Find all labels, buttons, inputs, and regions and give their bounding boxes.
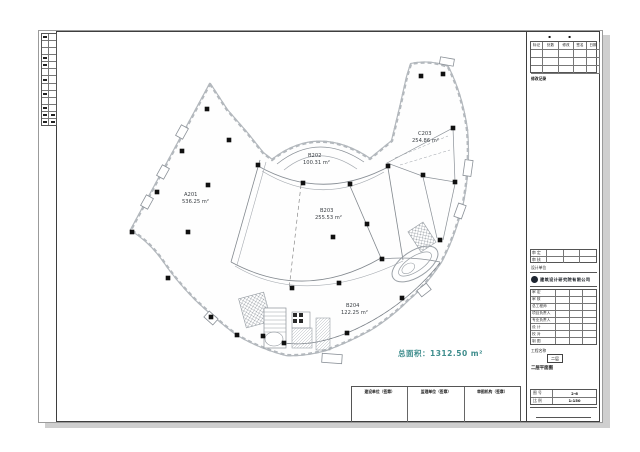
personnel-row: 设 计 [531,324,596,331]
strip-row [42,48,56,55]
revision-cell [574,66,587,74]
personnel-row: 制 图 [531,338,596,344]
cad-viewer-screenshot: { "page": { "bg": "#ffffff" }, "plan": {… [0,0,640,452]
drawing-sheet: ▪ ▪ 标记处数修改签名日期 修改记录 审 定审 核 设计单位 建筑设计研究院有… [38,30,603,423]
sheet-meta-row: 比 例1:150 [531,398,596,405]
personnel-row: 项目负责人 [531,311,596,318]
personnel-table: 审 定审 核总工程师项目负责人专业负责人设 计校 对制 图 [530,289,597,345]
revision-header-cell: 标记 [531,42,543,50]
strip-row [42,55,56,62]
approval-row: 审 定 [531,250,596,257]
approval-row: 审 核 [531,257,596,263]
approval-rows: 审 定审 核 [530,249,597,263]
company-logo-icon [531,276,538,283]
strip-row [42,105,56,112]
strip-row [42,62,56,69]
revision-header-cell: 修改 [559,42,574,50]
project-name-label: 工程名称 [531,348,600,354]
strip-row [42,76,56,83]
revision-cell [574,58,587,66]
revision-cell [559,66,574,74]
title-block-footer [530,407,597,421]
revision-cell [531,50,543,58]
strip-row [42,119,56,125]
title-block-marks: ▪ ▪ [527,34,600,39]
revision-cell [559,50,574,58]
company-row: 建筑设计研究院有限公司 [530,272,597,287]
design-unit-label: 设计单位 [531,265,600,271]
stamp-cell: 监理单位（签章） [408,387,464,422]
revision-cell [587,58,600,66]
strip-row [42,91,56,98]
revision-cell [574,50,587,58]
strip-row [42,112,56,119]
personnel-row: 专业负责人 [531,318,596,325]
revision-cell [543,66,559,74]
strip-row [42,34,56,41]
floor-tag-box: 二层 [547,354,563,363]
personnel-row: 审 定 [531,290,596,297]
strip-row [42,41,56,48]
revision-cell [559,58,574,66]
strip-row [42,98,56,105]
revision-header-cell: 日期 [587,42,600,50]
revision-strip [41,33,57,126]
stamp-cell: 审图机构（签章） [465,387,520,422]
revision-header-cell: 签名 [574,42,587,50]
revision-cell [543,50,559,58]
revision-cell [543,58,559,66]
company-name: 建筑设计研究院有限公司 [540,277,590,283]
drawing-name: 二层平面图 [531,365,600,371]
stamp-strip: 建设单位（签章）监理单位（签章）审图机构（签章） [351,386,521,422]
revision-cell [587,50,600,58]
personnel-row: 总工程师 [531,304,596,311]
revision-header-cell: 处数 [543,42,559,50]
title-block: ▪ ▪ 标记处数修改签名日期 修改记录 审 定审 核 设计单位 建筑设计研究院有… [526,31,600,422]
strip-row [42,69,56,76]
stamp-cell: 建设单位（签章） [352,387,408,422]
personnel-row: 校 对 [531,331,596,338]
revision-cell [531,58,543,66]
revision-note: 修改记录 [531,76,600,82]
revision-table: 标记处数修改签名日期 [530,41,597,73]
sheet-meta-row: 图 号2-6 [531,390,596,398]
drawing-frame [56,31,600,422]
revision-cell [531,66,543,74]
sheet-meta-table: 图 号2-6比 例1:150 [530,389,597,405]
personnel-row: 审 核 [531,297,596,304]
strip-row [42,84,56,91]
revision-cell [587,66,600,74]
